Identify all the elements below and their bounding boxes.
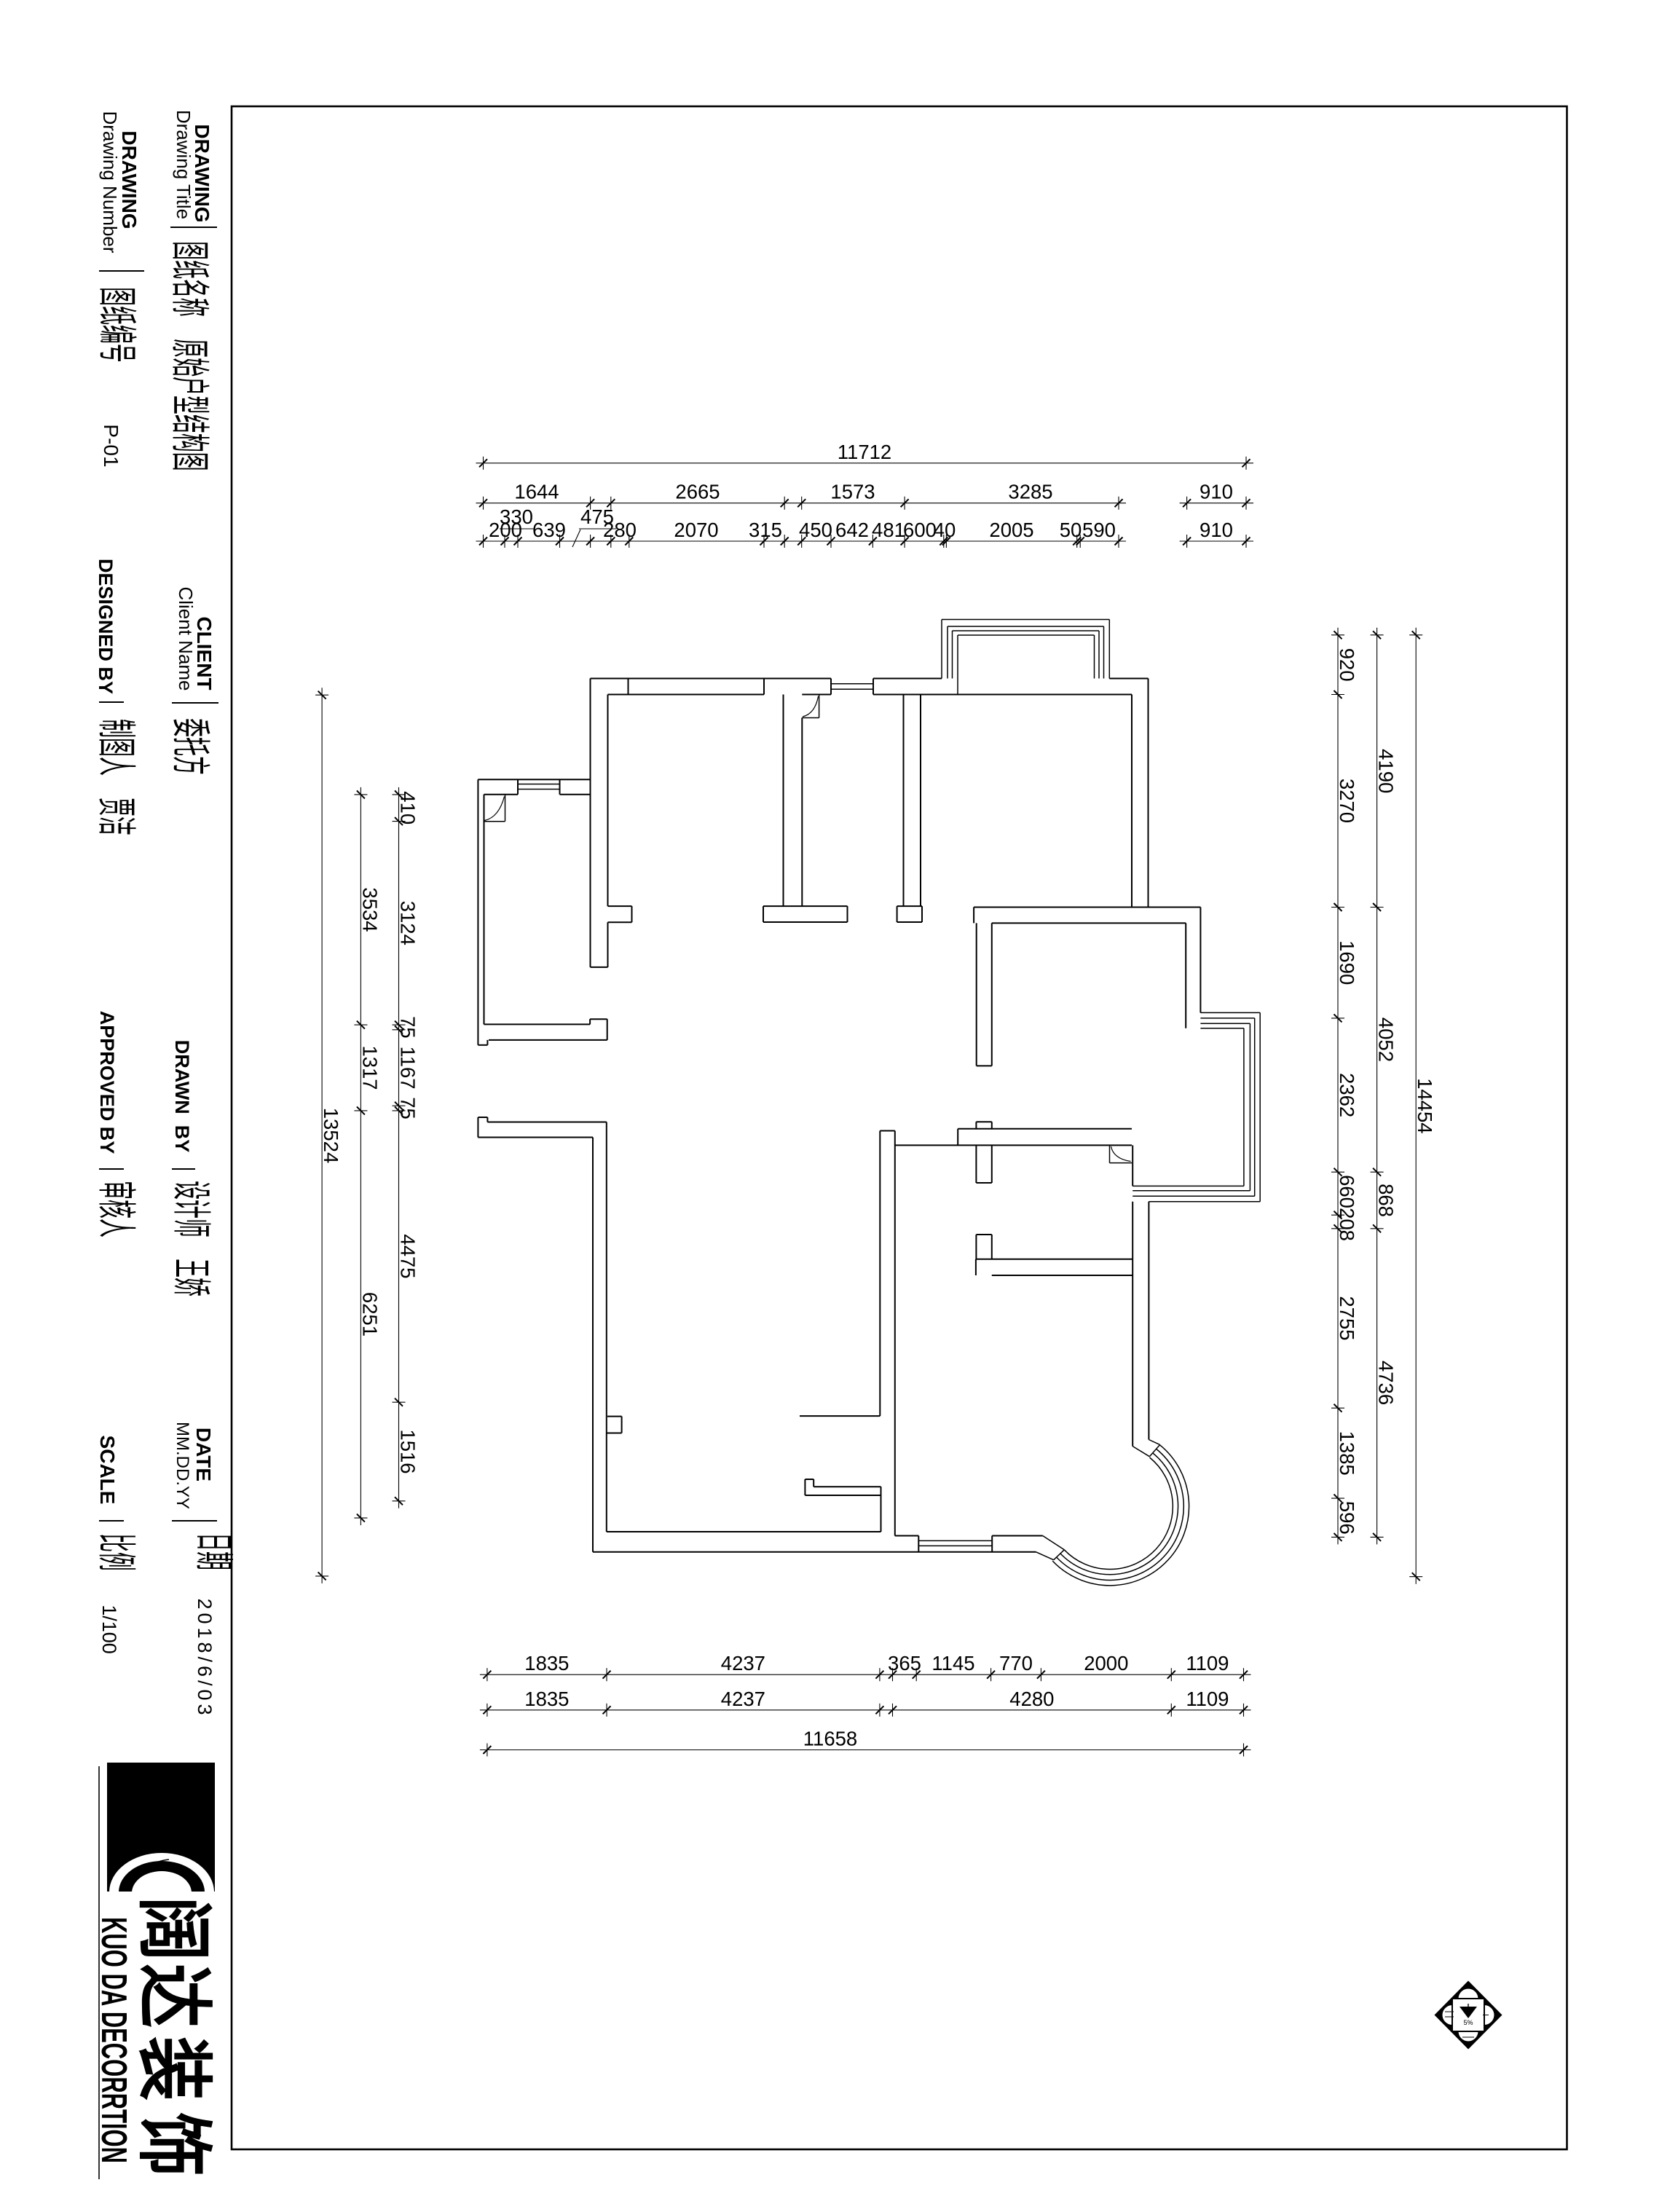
svg-text:Drawing Title: Drawing Title: [173, 110, 194, 219]
svg-text:DRAWN BY: DRAWN BY: [171, 1040, 193, 1153]
svg-text:6251: 6251: [358, 1292, 381, 1337]
svg-text:1385: 1385: [1336, 1431, 1358, 1476]
svg-text:208: 208: [1336, 1208, 1358, 1241]
svg-text:920: 920: [1336, 648, 1358, 682]
svg-text:DESIGNED BY: DESIGNED BY: [95, 559, 117, 694]
svg-text:SCALE: SCALE: [96, 1436, 119, 1505]
svg-text:11658: 11658: [803, 1728, 857, 1750]
svg-text:设计师: 设计师: [170, 1181, 213, 1237]
svg-text:75: 75: [397, 1097, 419, 1119]
svg-text:2018/6/03: 2018/6/03: [194, 1598, 216, 1718]
svg-text:1109: 1109: [1186, 1652, 1229, 1674]
svg-text:3270: 3270: [1336, 779, 1358, 823]
svg-text:王娇: 王娇: [170, 1259, 213, 1296]
svg-text:Client Name: Client Name: [175, 586, 197, 690]
svg-text:4052: 4052: [1375, 1018, 1398, 1062]
svg-text:642: 642: [835, 519, 869, 541]
svg-text:11712: 11712: [838, 441, 891, 463]
svg-text:1167: 1167: [397, 1046, 419, 1089]
svg-text:1644: 1644: [514, 481, 559, 503]
svg-text:2665: 2665: [675, 481, 720, 503]
svg-text:600: 600: [903, 519, 937, 541]
svg-text:2362: 2362: [1336, 1073, 1358, 1117]
svg-text:制图人: 制图人: [95, 719, 138, 776]
svg-text:770: 770: [999, 1652, 1033, 1674]
svg-text:590: 590: [1082, 519, 1116, 541]
svg-text:40: 40: [934, 519, 956, 541]
svg-text:596: 596: [1336, 1501, 1358, 1535]
svg-text:1317: 1317: [358, 1045, 381, 1090]
svg-text:868: 868: [1375, 1184, 1398, 1217]
svg-text:达: 达: [130, 1964, 216, 2028]
svg-text:APPROVED BY: APPROVED BY: [96, 1011, 118, 1154]
svg-text:2000: 2000: [1084, 1652, 1128, 1674]
svg-text:日期: 日期: [192, 1532, 236, 1570]
svg-text:原始户型结构图: 原始户型结构图: [168, 339, 212, 471]
svg-text:910: 910: [1200, 481, 1233, 503]
svg-text:KUO DA DECORRTION: KUO DA DECORRTION: [94, 1917, 134, 2163]
svg-text:450: 450: [799, 519, 832, 541]
svg-text:1109: 1109: [1186, 1688, 1229, 1710]
svg-text:1835: 1835: [524, 1652, 569, 1674]
svg-text:410: 410: [397, 791, 419, 824]
svg-text:1/100: 1/100: [98, 1605, 120, 1654]
svg-text:1690: 1690: [1336, 940, 1358, 985]
svg-text:1145: 1145: [931, 1652, 974, 1674]
svg-text:475: 475: [580, 505, 614, 528]
svg-text:P-01: P-01: [100, 424, 122, 467]
svg-text:MM.DD.YY: MM.DD.YY: [173, 1422, 192, 1509]
svg-text:4237: 4237: [721, 1688, 765, 1710]
svg-text:3285: 3285: [1008, 481, 1052, 503]
svg-text:DATE: DATE: [192, 1428, 215, 1481]
svg-text:3534: 3534: [358, 887, 381, 932]
svg-text:1835: 1835: [524, 1688, 569, 1710]
svg-text:910: 910: [1200, 519, 1233, 541]
svg-text:4736: 4736: [1375, 1361, 1398, 1405]
svg-text:贾洁: 贾洁: [95, 798, 138, 835]
svg-text:比例: 比例: [95, 1533, 138, 1571]
svg-text:50: 50: [1060, 519, 1082, 541]
svg-text:饰: 饰: [130, 2112, 216, 2176]
svg-text:4280: 4280: [1009, 1688, 1054, 1710]
svg-text:5%: 5%: [1463, 2019, 1473, 2026]
svg-text:2070: 2070: [674, 519, 718, 541]
svg-text:4237: 4237: [721, 1652, 765, 1674]
svg-text:4190: 4190: [1375, 749, 1398, 793]
svg-text:审核人: 审核人: [95, 1181, 138, 1237]
svg-text:3124: 3124: [397, 901, 419, 945]
svg-text:2755: 2755: [1336, 1296, 1358, 1340]
svg-text:阔: 阔: [130, 1897, 216, 1961]
svg-text:365: 365: [888, 1652, 921, 1674]
svg-text:1573: 1573: [830, 481, 875, 503]
svg-text:660: 660: [1336, 1175, 1358, 1208]
svg-text:330: 330: [500, 505, 533, 528]
svg-text:14454: 14454: [1414, 1078, 1436, 1133]
svg-text:481: 481: [872, 519, 905, 541]
svg-text:75: 75: [397, 1016, 419, 1039]
svg-text:装: 装: [130, 2036, 216, 2101]
svg-text:639: 639: [532, 519, 566, 541]
svg-text:Drawing Number: Drawing Number: [99, 111, 121, 253]
svg-text:13524: 13524: [320, 1108, 342, 1163]
svg-text:315: 315: [749, 519, 782, 541]
svg-text:2005: 2005: [989, 519, 1033, 541]
svg-text:1516: 1516: [397, 1429, 419, 1473]
svg-text:委托方: 委托方: [169, 718, 213, 775]
svg-text:图纸编号: 图纸编号: [95, 287, 139, 363]
svg-text:图纸名称: 图纸名称: [168, 241, 212, 317]
svg-text:4475: 4475: [397, 1234, 419, 1278]
